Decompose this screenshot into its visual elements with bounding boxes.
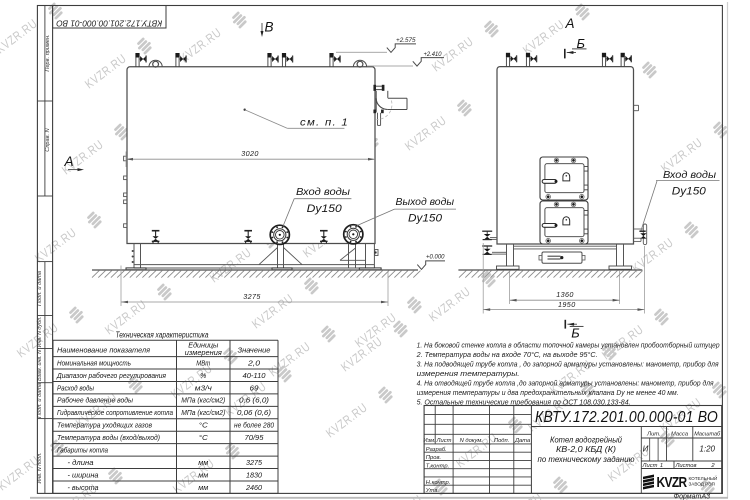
svg-text:МВт: МВт bbox=[196, 358, 210, 367]
svg-text:КВТУ.172.201.00.000-01 ВО: КВТУ.172.201.00.000-01 ВО bbox=[535, 409, 718, 426]
svg-text:Выход воды: Выход воды bbox=[396, 196, 455, 208]
svg-text:2. Температура воды на входе: 2. Температура воды на входе 70°С, на вы… bbox=[416, 350, 598, 359]
svg-text:Пров.: Пров. bbox=[426, 455, 441, 461]
svg-text:Техническая характеристика: Техническая характеристика bbox=[116, 330, 209, 339]
svg-text:3020: 3020 bbox=[241, 149, 259, 158]
svg-text:3275: 3275 bbox=[246, 458, 263, 467]
svg-text:Гидравлическое сопротивление к: Гидравлическое сопротивление котла bbox=[57, 408, 173, 417]
svg-text:Взам. инв. N: Взам. инв. N bbox=[37, 350, 43, 381]
svg-text:мм: мм bbox=[198, 470, 208, 479]
svg-text:1:20: 1:20 bbox=[699, 444, 715, 453]
svg-text:не более 280: не более 280 bbox=[234, 421, 274, 430]
svg-text:см. п. 1: см. п. 1 bbox=[300, 116, 349, 128]
svg-text:КВ-2,0 КБД (К): КВ-2,0 КБД (К) bbox=[556, 444, 616, 454]
svg-text:40-110: 40-110 bbox=[243, 371, 266, 380]
svg-text:А: А bbox=[565, 16, 575, 31]
svg-text:2,0: 2,0 bbox=[247, 358, 260, 367]
svg-text:3275: 3275 bbox=[243, 292, 261, 301]
svg-text:Утв.: Утв. bbox=[425, 488, 439, 494]
svg-text:Дата: Дата bbox=[514, 438, 531, 444]
svg-text:Котел водогрейный: Котел водогрейный bbox=[550, 435, 622, 445]
svg-text:КВТУ.172.201.00.000-01 ВО: КВТУ.172.201.00.000-01 ВО bbox=[56, 18, 162, 28]
svg-text:измерения: измерения bbox=[185, 348, 222, 357]
svg-text:+0.000: +0.000 bbox=[426, 254, 445, 261]
svg-text:В: В bbox=[265, 20, 274, 35]
svg-text:Dy150: Dy150 bbox=[408, 213, 443, 225]
svg-text:69: 69 bbox=[250, 383, 259, 392]
svg-text:Температура воды (вход/выход): Температура воды (вход/выход) bbox=[57, 433, 160, 442]
svg-text:Справ. N: Справ. N bbox=[45, 127, 51, 151]
svg-text:измерения температуры.: измерения температуры. bbox=[417, 369, 520, 378]
svg-text:1. На боковой стенке котла в: 1. На боковой стенке котла в области топ… bbox=[417, 341, 720, 350]
svg-text:Лит.: Лит. bbox=[646, 431, 661, 437]
svg-text:Наименование показателя: Наименование показателя bbox=[57, 345, 150, 354]
svg-text:2460: 2460 bbox=[245, 483, 262, 492]
svg-text:Инв. N подл.: Инв. N подл. bbox=[37, 453, 43, 484]
svg-text:Подп. и дата: Подп. и дата bbox=[37, 271, 43, 306]
svg-text:Dy150: Dy150 bbox=[672, 185, 707, 197]
svg-text:мм: мм bbox=[198, 483, 208, 492]
svg-text:3. На подводящей трубе котла: 3. На подводящей трубе котла , до запорн… bbox=[417, 360, 719, 369]
svg-text:Габариты котла: Габариты котла bbox=[57, 445, 108, 454]
svg-text:1: 1 bbox=[660, 463, 663, 469]
svg-text:Подп.: Подп. bbox=[494, 438, 509, 444]
svg-text:Листов: Листов bbox=[674, 463, 696, 469]
svg-text:Изм.: Изм. bbox=[423, 438, 435, 444]
svg-text:Разраб.: Разраб. bbox=[426, 447, 447, 453]
svg-text:+2.575: +2.575 bbox=[396, 37, 416, 44]
svg-text:Т.контр.: Т.контр. bbox=[426, 463, 449, 469]
svg-text:Н.контр.: Н.контр. bbox=[426, 480, 451, 486]
svg-text:- ширина: - ширина bbox=[68, 470, 99, 479]
svg-text:Температура уходящих газов: Температура уходящих газов bbox=[57, 421, 152, 430]
svg-text:Рабочее давление воды: Рабочее давление воды bbox=[57, 396, 134, 405]
svg-text:Масштаб: Масштаб bbox=[694, 431, 721, 437]
svg-text:МПа (кгс/см2): МПа (кгс/см2) bbox=[181, 408, 225, 417]
svg-text:измерения температуры и два пр: измерения температуры и два предохраните… bbox=[417, 388, 679, 397]
svg-text:Масса: Масса bbox=[671, 431, 689, 437]
svg-text:Лист: Лист bbox=[436, 438, 452, 444]
svg-text:KVZR: KVZR bbox=[657, 474, 688, 491]
svg-text:А: А bbox=[64, 154, 74, 169]
svg-text:Вход воды: Вход воды bbox=[663, 169, 716, 181]
svg-text:Инв. N дубл.: Инв. N дубл. bbox=[37, 317, 43, 348]
svg-text:Значение: Значение bbox=[238, 345, 271, 354]
svg-text:Б: Б bbox=[571, 325, 580, 340]
svg-text:Диапазон рабочего регулировани: Диапазон рабочего регулирования bbox=[56, 371, 166, 380]
svg-text:Расход воды: Расход воды bbox=[57, 383, 95, 392]
svg-text:А3: А3 bbox=[701, 494, 711, 500]
svg-text:1950: 1950 bbox=[558, 300, 576, 309]
svg-text:2: 2 bbox=[710, 463, 715, 469]
svg-text:+2.410: +2.410 bbox=[424, 51, 442, 58]
svg-text:Лист: Лист bbox=[642, 463, 658, 469]
svg-text:Номинальная мощность: Номинальная мощность bbox=[57, 358, 131, 367]
svg-text:по техническому заданию: по техническому заданию bbox=[538, 454, 635, 464]
svg-text:МПа (кгс/см2): МПа (кгс/см2) bbox=[181, 396, 225, 405]
svg-text:- высота: - высота bbox=[68, 483, 99, 492]
svg-text:1360: 1360 bbox=[556, 290, 574, 299]
svg-text:Dy150: Dy150 bbox=[307, 203, 343, 215]
svg-text:4. На отводящей трубе котла ,: 4. На отводящей трубе котла ,до запорной… bbox=[417, 379, 714, 388]
svg-text:70/95: 70/95 bbox=[245, 433, 265, 442]
svg-text:Подп. и дата: Подп. и дата bbox=[37, 383, 43, 418]
svg-text:0,06 (0,6): 0,06 (0,6) bbox=[237, 408, 271, 417]
svg-text:N докум.: N докум. bbox=[460, 438, 483, 444]
svg-text:ЗАВОД РЭП: ЗАВОД РЭП bbox=[689, 482, 715, 487]
svg-text:Формат: Формат bbox=[674, 494, 702, 500]
svg-text:- длина: - длина bbox=[68, 458, 94, 467]
svg-text:Вход воды: Вход воды bbox=[296, 186, 350, 198]
svg-text:0,6 (6,0): 0,6 (6,0) bbox=[239, 396, 269, 405]
svg-text:1830: 1830 bbox=[246, 470, 262, 479]
svg-text:%: % bbox=[200, 371, 207, 380]
svg-text:м3/ч: м3/ч bbox=[195, 383, 212, 392]
svg-text:КОТЕЛЬНЫЙ: КОТЕЛЬНЫЙ bbox=[689, 474, 718, 481]
svg-text:Перв. примен.: Перв. примен. bbox=[45, 34, 51, 71]
svg-text:°С: °С bbox=[199, 421, 209, 430]
svg-text:мм: мм bbox=[198, 458, 208, 467]
svg-text:И: И bbox=[643, 444, 649, 453]
svg-text:°С: °С bbox=[199, 433, 209, 442]
